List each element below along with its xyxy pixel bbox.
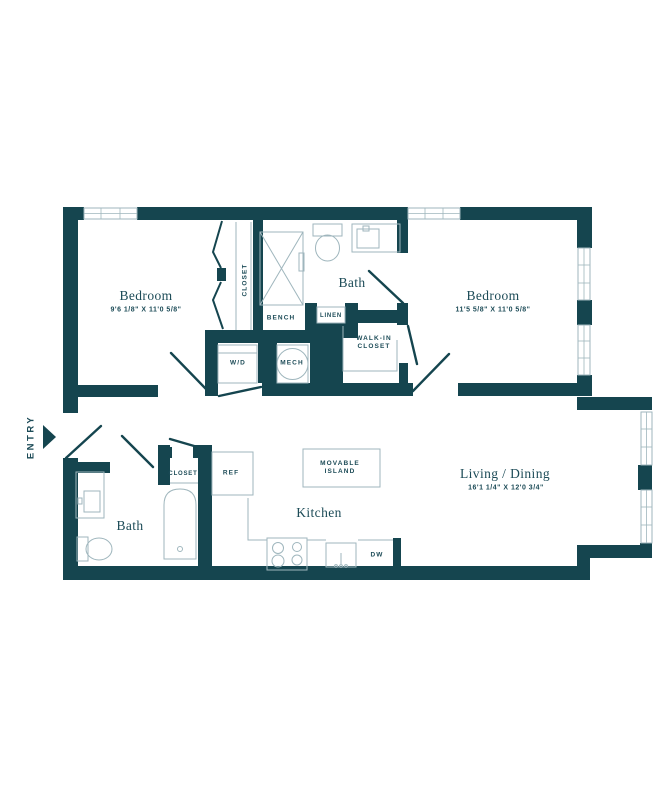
wall-segment [63,207,78,413]
bedroom-right-name: Bedroom [466,288,519,304]
window [578,248,590,300]
island-line2: ISLAND [325,468,356,475]
window [641,412,652,465]
closet-lower-door-swing [170,439,201,448]
wall-segment [577,397,652,410]
floor-plan-drawing [0,0,663,792]
wall-segment [393,538,401,572]
bedroom-right-dims: 11'5 5/8" X 11'0 5/8" [456,307,531,314]
movable-island-label: MOVABLE ISLAND [320,460,360,476]
wall-segment [458,383,592,396]
wall-segment [357,310,408,323]
entry-arrow-icon [43,425,56,449]
window [408,208,460,219]
walk-in-line2: CLOSET [358,343,391,350]
wall-segment [577,300,592,325]
island-line1: MOVABLE [320,460,360,467]
window [641,490,652,543]
walk-in-line1: WALK-IN [356,335,392,342]
ref-label: REF [223,470,239,477]
toilet-icon [313,224,342,261]
closet-lower-label: CLOSET [168,471,197,477]
wall-segment [217,268,226,281]
kitchen-sink-icon [326,543,356,567]
bathtub-icon [164,489,196,559]
entry-label: ENTRY [26,415,37,459]
mech-label: MECH [280,360,304,367]
wall-segment [205,343,218,396]
stove-icon [267,538,307,570]
sink-icon [76,472,104,518]
bedroom-left-door-swing [171,353,206,389]
living-dining-name: Living / Dining [460,466,550,482]
wall-segment [258,343,277,383]
walk-in-door-swing [408,326,417,364]
dw-label: DW [370,552,383,559]
wall-segment [460,207,592,220]
bench-label: BENCH [267,315,296,322]
walk-in-closet-label: WALK-IN CLOSET [356,335,392,351]
wall-segment [63,385,158,397]
wall-segment [63,566,590,580]
bedroom-left-name: Bedroom [119,288,172,304]
living-dining-dims: 16'1 1/4" X 12'0 3/4" [468,485,544,492]
wall-segment [577,545,590,580]
bedroom-right-door-swing [413,354,449,391]
shower-icon [260,232,304,305]
bath-lower-door-swing [122,436,153,467]
windows [84,208,652,543]
wd-door-swing [219,387,261,396]
wall-segment [305,323,358,338]
sink-icon [352,224,400,252]
closet-upper-label: CLOSET [242,264,249,297]
wall-segment [397,218,408,253]
kitchen-label: Kitchen [296,505,342,521]
bath-upper-label: Bath [338,275,365,291]
linen-label: LINEN [320,313,342,319]
wall-segment [305,303,317,323]
wall-segment [262,383,413,396]
wall-segment [158,447,172,458]
wall-segment [638,465,652,490]
wall-segment [399,363,408,385]
bedroom-left-dims: 9'6 1/8" X 11'0 5/8" [111,307,182,314]
entry-door-swing [66,426,101,458]
toilet-icon [77,537,112,561]
wd-label: W/D [230,360,246,367]
wall-segment [198,445,212,567]
walls [63,207,652,580]
bath-upper-door-swing [369,271,403,303]
bath-lower-label: Bath [116,518,143,534]
wall-segment [577,207,592,248]
wall-segment [137,207,408,220]
wall-segment [310,343,343,383]
floor-plan: ENTRY Bedroom 9'6 1/8" X 11'0 5/8" Bedro… [0,0,663,792]
wall-segment [345,303,358,323]
wall-segment [63,462,110,473]
window [578,325,590,375]
window [84,208,137,219]
